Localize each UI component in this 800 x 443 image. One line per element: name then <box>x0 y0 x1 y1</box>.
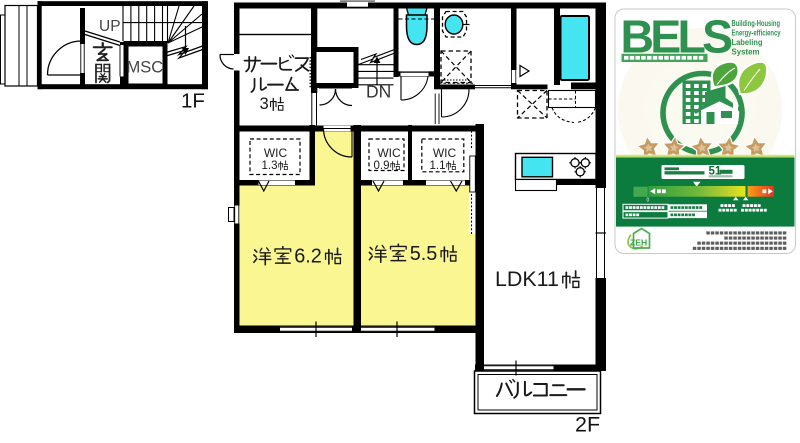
svg-text:5.5: 5.5 <box>410 243 438 265</box>
svg-text:MSC: MSC <box>127 59 164 77</box>
svg-text:0.9: 0.9 <box>374 160 390 172</box>
svg-text:6.2: 6.2 <box>294 245 322 267</box>
svg-text:1.3: 1.3 <box>262 160 278 172</box>
svg-text:LDK11: LDK11 <box>495 267 559 291</box>
svg-text:UP: UP <box>99 18 121 35</box>
svg-text:Energy-efficiency: Energy-efficiency <box>732 28 781 38</box>
svg-text:WIC: WIC <box>433 146 457 160</box>
svg-text:System: System <box>732 47 760 57</box>
svg-text:WIC: WIC <box>264 146 288 160</box>
svg-text:Building-Housing: Building-Housing <box>732 18 781 28</box>
svg-text:1.1: 1.1 <box>430 160 446 172</box>
svg-text:ZEH: ZEH <box>630 237 647 247</box>
svg-text:1F: 1F <box>181 90 205 113</box>
svg-text:Labeling: Labeling <box>732 37 763 47</box>
svg-text:DN: DN <box>366 82 391 102</box>
svg-text:0: 0 <box>647 197 650 203</box>
svg-text:2F: 2F <box>575 413 600 437</box>
svg-text:3: 3 <box>260 94 269 113</box>
svg-text:WIC: WIC <box>377 146 401 160</box>
